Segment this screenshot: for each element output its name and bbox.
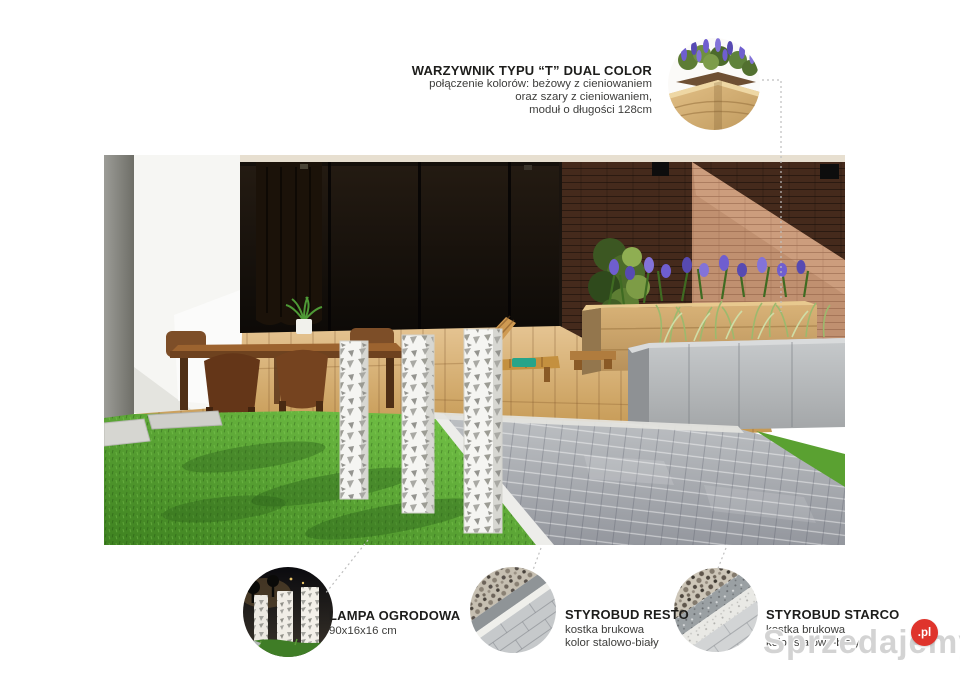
resto-thumbnail <box>470 567 556 653</box>
curtain <box>256 162 322 325</box>
top-callout-line-1: połączenie kolorów: beżowy z cieniowanie… <box>412 78 652 91</box>
top-callout-title: WARZYWNIK TYPU “T” DUAL COLOR <box>412 63 652 78</box>
garden-render-image <box>104 155 845 545</box>
lamp-post-2 <box>402 335 434 513</box>
lamp-thumbnail <box>243 567 333 657</box>
top-callout-line-3: moduł o długości 128cm <box>412 104 652 117</box>
garden-scene-svg <box>104 155 845 545</box>
page-canvas: WARZYWNIK TYPU “T” DUAL COLOR połączenie… <box>0 0 960 678</box>
top-callout-line-2: oraz szary z cieniowaniem, <box>412 91 652 104</box>
planter-thumbnail <box>668 38 760 130</box>
wall-spotlight <box>652 162 669 176</box>
planter-thumbnail-art <box>668 38 760 130</box>
watermark-pl-label: .pl <box>918 627 931 639</box>
connector-lamp <box>325 540 368 594</box>
teal-towel <box>512 358 536 367</box>
wall-spotlight-2 <box>820 164 839 179</box>
lamp-callout-text-block: LAMPA OGRODOWA 90x16x16 cm <box>329 608 460 638</box>
top-callout-text-block: WARZYWNIK TYPU “T” DUAL COLOR połączenie… <box>412 63 652 117</box>
lamp-callout-line-1: 90x16x16 cm <box>329 625 460 638</box>
lamp-post-1 <box>340 341 368 499</box>
glass-facade <box>240 162 563 342</box>
watermark-pl-badge: .pl <box>911 619 938 646</box>
connector-resto <box>533 548 541 570</box>
starco-callout-title: STYROBUD STARCO <box>766 607 899 622</box>
stepping-slab-1 <box>104 419 150 446</box>
gray-planter <box>628 338 845 436</box>
resto-callout-text-block: STYROBUD RESTO kostka brukowa kolor stal… <box>565 607 689 650</box>
resto-bands <box>470 567 556 653</box>
resto-callout-line-2: kolor stalowo-biały <box>565 637 689 650</box>
roof-fascia <box>134 155 845 162</box>
resto-callout-line-1: kostka brukowa <box>565 624 689 637</box>
lamp-thumbnail-art <box>243 567 333 657</box>
lamp-post-3 <box>464 329 502 533</box>
chair-front-2 <box>276 350 328 409</box>
lamp-callout-title: LAMPA OGRODOWA <box>329 608 460 623</box>
resto-callout-title: STYROBUD RESTO <box>565 607 689 622</box>
resto-thumbnail-art <box>470 567 556 653</box>
